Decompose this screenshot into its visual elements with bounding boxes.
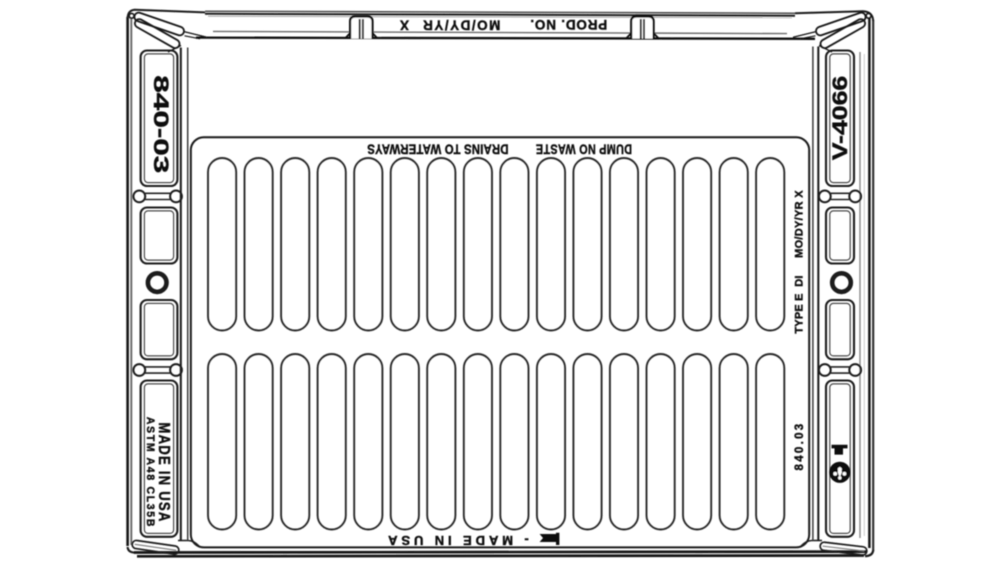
svg-text:840.03: 840.03 [794,422,806,471]
svg-text:TYPE E DI: TYPE E DI [793,275,805,333]
svg-text:ASTM A48 CL35B: ASTM A48 CL35B [144,417,156,528]
svg-text:DUMP NO WASTE: DUMP NO WASTE [536,141,632,156]
svg-text:MADE IN USA: MADE IN USA [155,422,172,522]
svg-text:DRAINS TO WATERWAYS: DRAINS TO WATERWAYS [367,141,508,156]
svg-text:X: X [400,18,409,33]
svg-text:840-03: 840-03 [149,75,173,173]
svg-text:MO/DY/YR X: MO/DY/YR X [793,190,805,258]
svg-text:- MADE IN USA: - MADE IN USA [384,533,529,548]
svg-text:PROD. NO.: PROD. NO. [530,17,608,32]
svg-text:MO/DY/YR: MO/DY/YR [422,18,501,33]
svg-text:V-4066: V-4066 [829,76,853,161]
